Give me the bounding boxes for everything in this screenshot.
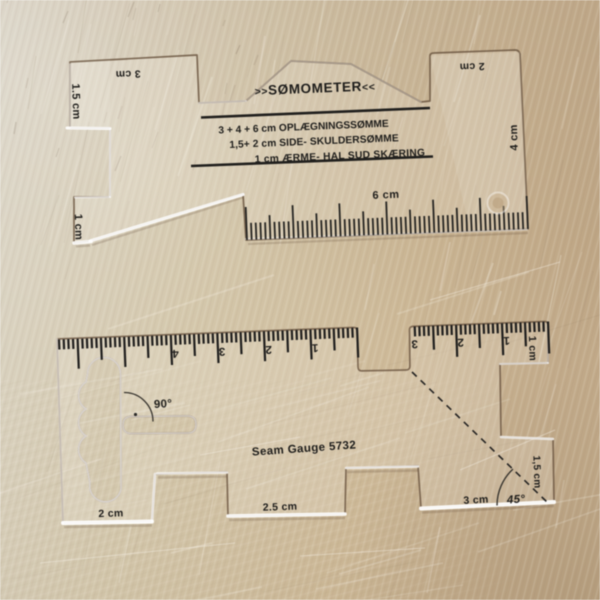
svg-text:6 cm: 6 cm [372, 189, 400, 202]
svg-text:1.5 cm: 1.5 cm [69, 83, 82, 119]
svg-text:3: 3 [411, 337, 418, 349]
svg-text:1: 1 [503, 334, 510, 346]
svg-text:3 cm: 3 cm [115, 67, 141, 80]
svg-text:2: 2 [457, 336, 464, 348]
svg-text:2 cm: 2 cm [459, 60, 485, 73]
svg-text:1: 1 [311, 341, 318, 353]
svg-text:3 cm: 3 cm [463, 494, 489, 507]
svg-text:1,5 cm: 1,5 cm [530, 455, 542, 488]
svg-text:2.5 cm: 2.5 cm [263, 501, 298, 514]
svg-text:1 cm: 1 cm [526, 336, 539, 362]
svg-text:4 cm: 4 cm [508, 124, 521, 151]
svg-text:90°: 90° [154, 398, 173, 411]
svg-text:1 cm: 1 cm [72, 214, 85, 241]
svg-text:2: 2 [265, 343, 272, 355]
svg-text:45°: 45° [506, 493, 526, 506]
svg-text:4: 4 [171, 347, 178, 359]
svg-text:2 cm: 2 cm [98, 507, 124, 520]
svg-text:3: 3 [219, 345, 226, 357]
